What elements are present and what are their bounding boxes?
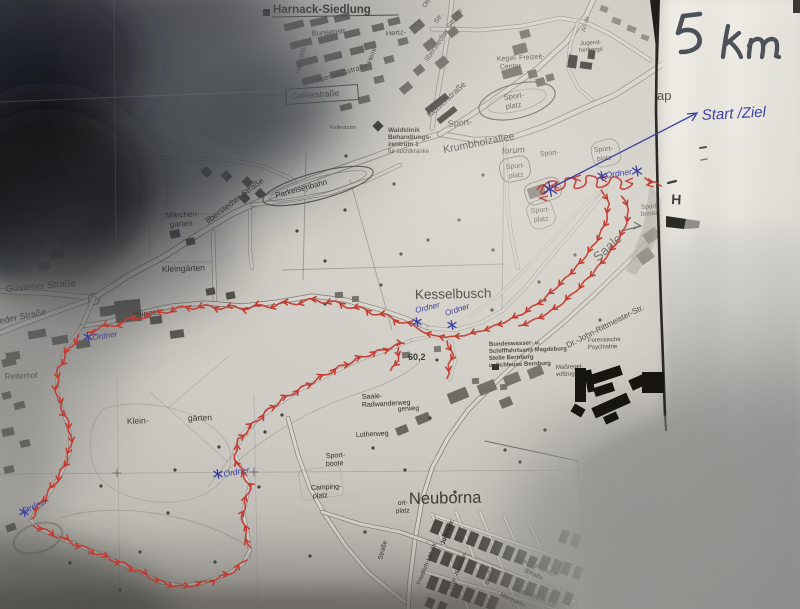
svg-text:gerweg: gerweg — [398, 405, 420, 413]
svg-text:Klein-: Klein- — [127, 415, 149, 426]
svg-text:boote: boote — [326, 460, 344, 468]
svg-text:ap: ap — [657, 88, 671, 103]
svg-text:Sport-: Sport- — [326, 452, 346, 460]
svg-text:Neuborna: Neuborna — [409, 489, 483, 508]
svg-text:H: H — [671, 191, 682, 208]
svg-text:platz: platz — [396, 507, 410, 515]
svg-text:platz: platz — [313, 492, 329, 500]
svg-text:Saale-: Saale- — [362, 393, 383, 401]
svg-text:Start /Ziel: Start /Ziel — [701, 104, 767, 124]
svg-text:ort-: ort- — [398, 499, 408, 507]
svg-text:gärten: gärten — [188, 412, 213, 423]
